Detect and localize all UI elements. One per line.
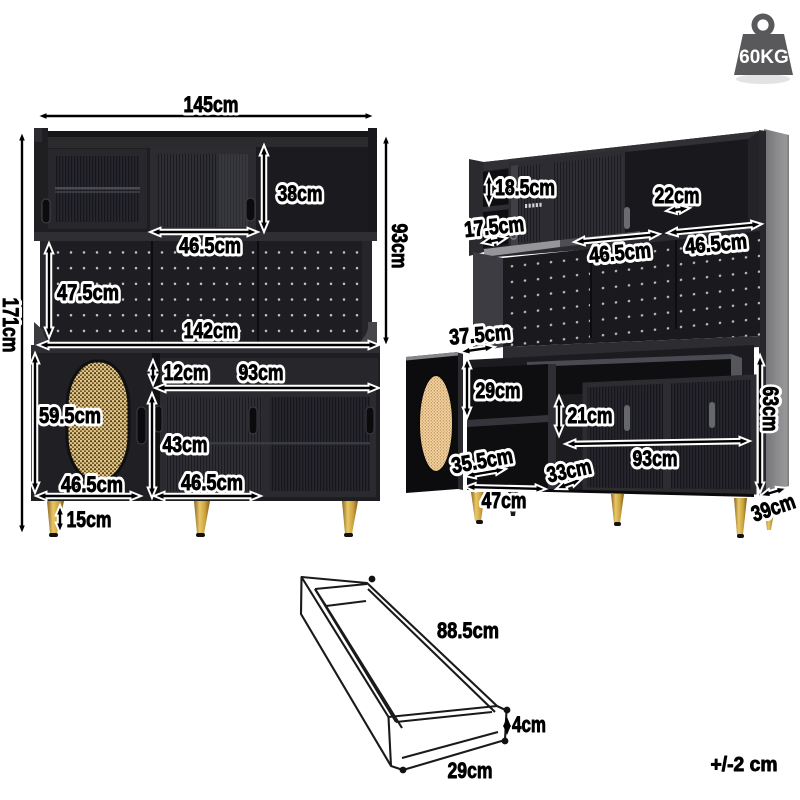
svg-text:15cm: 15cm [67, 507, 112, 532]
svg-text:38cm: 38cm [278, 181, 323, 206]
svg-text:60KG: 60KG [739, 47, 789, 68]
svg-text:46.5cm: 46.5cm [179, 233, 241, 258]
svg-text:29cm: 29cm [476, 378, 521, 403]
svg-text:171cm: 171cm [0, 298, 23, 353]
svg-text:93cm: 93cm [239, 360, 284, 385]
svg-text:4cm: 4cm [512, 712, 546, 737]
svg-text:22cm: 22cm [655, 183, 700, 208]
svg-text:47.5cm: 47.5cm [57, 280, 119, 305]
svg-text:29cm: 29cm [448, 758, 493, 783]
svg-text:59.5cm: 59.5cm [39, 403, 101, 428]
svg-text:+/-2 cm: +/-2 cm [711, 754, 778, 776]
svg-text:21cm: 21cm [568, 403, 613, 428]
svg-text:145cm: 145cm [184, 92, 239, 117]
svg-text:88.5cm: 88.5cm [437, 618, 499, 643]
svg-text:93cm: 93cm [633, 446, 678, 471]
svg-text:18.5cm: 18.5cm [495, 175, 555, 200]
svg-text:43cm: 43cm [163, 432, 208, 457]
svg-text:93cm: 93cm [387, 224, 412, 269]
svg-text:12cm: 12cm [164, 360, 209, 385]
svg-text:46.5cm: 46.5cm [181, 470, 243, 495]
svg-text:142cm: 142cm [184, 318, 239, 343]
svg-text:63cm: 63cm [758, 387, 783, 432]
svg-text:47cm: 47cm [482, 488, 527, 513]
